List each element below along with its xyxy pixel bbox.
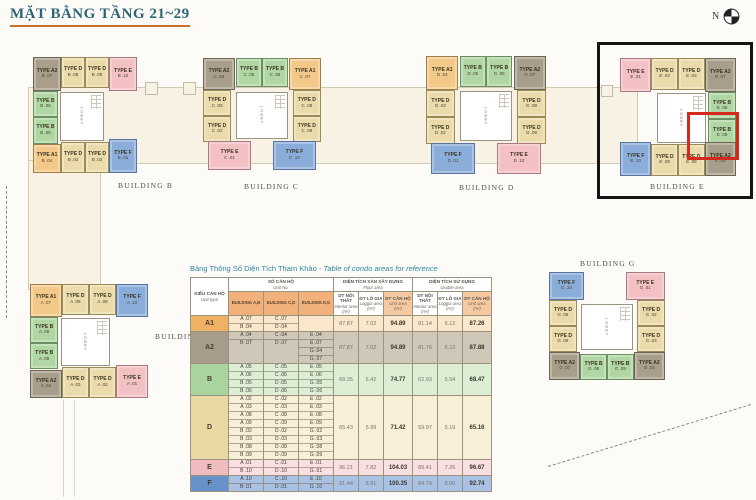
unit-block-a05: TYPE BA .05 [30, 343, 58, 369]
area-value-cell: 94.89 [384, 332, 413, 364]
unit-block-b01: TYPE FB .01 [109, 139, 137, 173]
unit-number: A .02 [97, 383, 107, 388]
unit-list-item: C .03 [264, 403, 298, 411]
lobby-block: LOBBY [60, 92, 104, 141]
unit-list-item: G .06 [299, 387, 333, 395]
unit-list-item: A .01 [229, 460, 263, 467]
area-value-cell: 5.19 [438, 396, 463, 460]
unit-number: D .04 [437, 73, 448, 78]
unit-block-b06: TYPE BB .06 [33, 91, 58, 118]
unit-number: B .05 [40, 131, 51, 136]
unit-list-item: C .04 [264, 332, 298, 339]
area-value-cell: 87.88 [463, 332, 492, 364]
lobby-label: LOBBY [83, 333, 88, 351]
unit-list-item: B .01 [229, 483, 263, 491]
unit-list-item: A .03 [229, 403, 263, 411]
unit-list-item: C .01 [264, 460, 298, 467]
unit-number: C .08 [301, 104, 312, 109]
unit-list-item: A .09 [229, 419, 263, 427]
unit-number: D .10 [514, 159, 525, 164]
unit-number: B .04 [42, 159, 53, 164]
row-label-a1: A1 [191, 316, 229, 332]
unit-list-item: E .08 [299, 411, 333, 419]
unit-number: B .03 [68, 158, 79, 163]
unit-list-item: D .05 [264, 379, 298, 387]
unit-block-g06: TYPE BG .06 [580, 354, 607, 380]
unit-block-d10: TYPE ED .10 [497, 143, 541, 174]
unit-block-g04: TYPE A2G .04 [634, 352, 665, 380]
unit-block-c06: TYPE BC .06 [262, 58, 288, 87]
unit-list-item: G .10 [299, 483, 333, 491]
unit-block-c03: TYPE DC .03 [203, 90, 231, 116]
unit-block-c02: TYPE DC .02 [203, 116, 231, 142]
unit-block-g03: TYPE DG .03 [637, 326, 665, 352]
unit-block-g08: TYPE DG .08 [549, 326, 577, 352]
unit-list-cell: C .04D .07 [264, 332, 299, 364]
lobby-block: LOBBY [581, 304, 632, 349]
unit-list-item: G .05 [299, 379, 333, 387]
unit-block-b03: TYPE DB .03 [61, 142, 85, 173]
unit-list-item: A .06 [229, 371, 263, 379]
unit-block-d09: TYPE DD .09 [517, 117, 546, 144]
area-value-cell: 68.47 [463, 364, 492, 396]
group-header-floor-area: DIỆN TÍCH SÀN XÂY DỰNGFloor area [334, 278, 413, 292]
unit-list-item: D .08 [264, 443, 298, 451]
unit-list-cell: E .02E .03E .08E .09G .02G .03G .08G .09 [299, 396, 334, 460]
unit-block-a03: TYPE DA .03 [62, 367, 89, 398]
area-value-cell: 7.82 [359, 460, 384, 476]
unit-block-g10: TYPE FG .10 [549, 272, 584, 300]
elevator-core [275, 95, 285, 109]
building-cluster-c: LOBBYTYPE A2C .04TYPE BC .05TYPE BC .06T… [203, 58, 321, 170]
unit-block-c09: TYPE DC .09 [293, 116, 321, 142]
building-label-b: BUILDING B [118, 181, 173, 190]
measure-header-1: DT LÔ GIALoggia area(m²) [359, 292, 384, 316]
unit-list-item: G .01 [299, 467, 333, 475]
area-value-cell: 6.42 [359, 364, 384, 396]
north-indicator: N [712, 8, 740, 25]
col-header-unit-no: SỐ CĂN HỘUnit No. [229, 278, 334, 292]
unit-list-item: D .10 [264, 467, 298, 475]
unit-list-cell: C .07D .04 [264, 316, 299, 332]
unit-number: D .01 [448, 159, 459, 164]
unit-number: D .03 [435, 104, 446, 109]
unit-list-item: G .08 [299, 443, 333, 451]
area-value-cell: 7.26 [438, 460, 463, 476]
unit-block-d04: TYPE A1D .04 [426, 56, 458, 90]
lobby-block: LOBBY [236, 92, 288, 139]
boundary-line-left [6, 186, 7, 318]
measure-header-0: DT NỘI THẤTInterior area(m²) [334, 292, 359, 316]
row-label-b: B [191, 364, 229, 396]
unit-list-item: D .03 [264, 435, 298, 443]
unit-number: D .08 [526, 104, 537, 109]
north-label: N [712, 11, 719, 22]
compass-icon [723, 8, 740, 25]
area-value-cell: 96.21 [334, 460, 359, 476]
unit-number: B .08 [68, 73, 79, 78]
building-subheader-1: BUILDING C,D [264, 292, 299, 316]
building-label-d: BUILDING D [459, 183, 515, 192]
area-value-cell: 6.12 [438, 332, 463, 364]
unit-list-cell: C .05C .06D .05D .06 [264, 364, 299, 396]
row-label-a2: A2 [191, 332, 229, 364]
lobby-label: LOBBY [79, 107, 84, 125]
unit-block-d07: TYPE A2D .07 [514, 56, 546, 90]
unit-number: G .01 [640, 286, 651, 291]
area-value-cell: 71.42 [384, 396, 413, 460]
unit-number: A .01 [127, 382, 137, 387]
building-label-g: BUILDING G [580, 259, 636, 268]
unit-number: G .02 [646, 313, 657, 318]
unit-block-d03: TYPE DD .03 [426, 90, 455, 117]
path-below-building-a [63, 400, 75, 497]
unit-list-cell: C .02C .03C .08C .09D .02D .03D .08D .09 [264, 396, 299, 460]
unit-block-c10: TYPE FC .10 [273, 141, 317, 170]
unit-block-c07: TYPE A1C .07 [289, 58, 321, 90]
unit-block-b05: TYPE BB .05 [33, 117, 58, 144]
unit-list-item: G .09 [299, 451, 333, 459]
unit-block-d01: TYPE FD .01 [431, 143, 475, 174]
unit-number: B .10 [118, 74, 129, 79]
unit-list-cell: E .04E .07G .04G .07 [299, 332, 334, 364]
unit-block-a04: TYPE A2A .04 [30, 370, 62, 399]
col-header-unit-type: KIỂU CĂN HỘUnit type [191, 278, 229, 316]
unit-number: A .07 [41, 301, 51, 306]
unit-list-item: E .02 [299, 396, 333, 403]
unit-number: C .06 [270, 73, 281, 78]
unit-list-item: B .04 [229, 323, 263, 331]
unit-block-g05: TYPE BG .05 [607, 354, 634, 380]
unit-number: D .09 [526, 131, 537, 136]
unit-list-item: E .01 [299, 460, 333, 467]
unit-block-g02: TYPE DG .02 [637, 300, 665, 326]
unit-block-a09: TYPE DA .09 [89, 284, 116, 315]
area-value-cell: 5.99 [359, 396, 384, 460]
unit-list-item: E .06 [299, 371, 333, 379]
unit-list-item: B .05 [229, 379, 263, 387]
unit-number: A .10 [127, 301, 137, 306]
unit-list-item: G .02 [299, 427, 333, 435]
unit-block-d06: TYPE BD .06 [486, 56, 512, 87]
unit-number: C .02 [212, 129, 223, 134]
building-cluster-g: LOBBYTYPE FG .10TYPE EG .01TYPE DG .09TY… [549, 272, 665, 380]
area-value-cell: 100.35 [384, 476, 413, 492]
unit-number: A .06 [39, 330, 49, 335]
unit-list-item: E .03 [299, 403, 333, 411]
unit-list-cell: A .04B .07 [229, 332, 264, 364]
unit-block-g07: TYPE A2G .07 [549, 352, 580, 380]
podium-strip-left [28, 160, 101, 290]
unit-number: C .05 [244, 73, 255, 78]
table-row-type-f: FA .10B .01C .10D .01E .10G .1091.448.91… [191, 476, 492, 492]
unit-list-item: D .07 [264, 339, 298, 347]
unit-block-d05: TYPE BD .05 [460, 56, 486, 87]
unit-number: C .07 [300, 75, 311, 80]
table-title: Bảng Thông Số Diện Tích Tham Khảo - Tabl… [190, 264, 495, 273]
row-label-d: D [191, 396, 229, 460]
unit-number: B .07 [42, 74, 53, 79]
unit-list-item: B .06 [229, 387, 263, 395]
unit-list-item: E .09 [299, 419, 333, 427]
area-value-cell: 84.74 [413, 476, 438, 492]
unit-block-c05: TYPE BC .05 [236, 58, 262, 87]
unit-list-cell: A .10B .01 [229, 476, 264, 492]
area-value-cell: 62.93 [413, 364, 438, 396]
building-label-c: BUILDING C [244, 182, 299, 191]
unit-list-item: G .03 [299, 435, 333, 443]
area-value-cell: 8.00 [438, 476, 463, 492]
unit-list-item: A .07 [229, 316, 263, 323]
unit-list-item: C .06 [264, 371, 298, 379]
unit-number: G .10 [561, 286, 572, 291]
unit-block-b02: TYPE DB .02 [85, 142, 109, 173]
unit-list-item: G .07 [299, 355, 333, 363]
areas-table: KIỂU CĂN HỘUnit typeSỐ CĂN HỘUnit No.DIỆ… [190, 277, 492, 492]
page-title: MẶT BẰNG TẦNG 21~29 [10, 6, 190, 27]
area-value-cell: 91.44 [334, 476, 359, 492]
unit-number: A .09 [97, 300, 107, 305]
lobby-block: LOBBY [61, 318, 111, 366]
lobby-label: LOBBY [604, 318, 609, 336]
unit-number: A .05 [39, 357, 49, 362]
unit-number: C .01 [224, 156, 235, 161]
unit-list-cell [299, 316, 334, 332]
unit-list-item: B .07 [229, 339, 263, 347]
unit-number: D .06 [494, 72, 505, 77]
unit-list-item: D .04 [264, 323, 298, 331]
area-value-cell: 94.89 [384, 316, 413, 332]
unit-list-item: B .10 [229, 467, 263, 475]
table-title-vi: Bảng Thông Số Diện Tích Tham Khảo - [190, 264, 321, 273]
unit-number: G .05 [615, 367, 626, 372]
lobby-label: LOBBY [259, 106, 264, 124]
elevator-core [620, 307, 630, 321]
area-value-cell: 81.14 [413, 316, 438, 332]
unit-list-cell: A .02A .03A .08A .09B .02B .03B .08B .09 [229, 396, 264, 460]
unit-list-item: D .02 [264, 427, 298, 435]
unit-number: A .04 [41, 384, 51, 389]
area-value-cell: 81.76 [413, 332, 438, 364]
measure-header-2: DT CĂN HỘUnit area(m²) [384, 292, 413, 316]
unit-number: B .02 [92, 158, 103, 163]
area-value-cell: 8.91 [359, 476, 384, 492]
building-cluster-a: LOBBYTYPE A1A .07TYPE DA .08TYPE DA .09T… [30, 284, 148, 398]
lobby-label: LOBBY [483, 107, 488, 125]
unit-block-a06: TYPE BA .06 [30, 317, 58, 343]
area-value-cell: 6.12 [438, 316, 463, 332]
unit-block-b10: TYPE EB .10 [109, 57, 137, 91]
unit-number: B .01 [118, 156, 129, 161]
group-header-usable-area: DIỆN TÍCH SỬ DỤNGUsable area [413, 278, 492, 292]
podium-core-square [145, 82, 158, 95]
highlight-box-unit-type-b [687, 112, 739, 160]
unit-number: G .06 [588, 367, 599, 372]
table-row-type-e: EA .01B .10C .01D .10E .01G .0196.217.82… [191, 460, 492, 476]
unit-list-item: A .10 [229, 476, 263, 483]
area-value-cell: 87.26 [463, 316, 492, 332]
unit-list-cell: A .05A .06B .05B .06 [229, 364, 264, 396]
unit-list-item: C .07 [264, 316, 298, 323]
row-label-e: E [191, 460, 229, 476]
area-value-cell: 7.02 [359, 332, 384, 364]
unit-block-c04: TYPE A2C .04 [203, 58, 235, 90]
building-subheader-0: BUILDING A,B [229, 292, 264, 316]
unit-list-item: C .10 [264, 476, 298, 483]
unit-number: B .09 [92, 73, 103, 78]
unit-block-g09: TYPE DG .09 [549, 300, 577, 326]
area-value-cell: 87.87 [334, 332, 359, 364]
unit-number: D .02 [435, 131, 446, 136]
unit-number: G .03 [646, 339, 657, 344]
unit-list-cell: A .07B .04 [229, 316, 264, 332]
table-row-type-a1: A1A .07B .04C .07D .0487.877.0294.8981.1… [191, 316, 492, 332]
unit-block-d08: TYPE DD .08 [517, 90, 546, 117]
unit-list-item: B .08 [229, 443, 263, 451]
unit-list-item: C .09 [264, 419, 298, 427]
unit-list-item: E .07 [299, 339, 333, 347]
unit-block-a10: TYPE FA .10 [116, 284, 148, 317]
unit-list-item: B .09 [229, 451, 263, 459]
unit-number: D .05 [467, 72, 478, 77]
unit-number: G .09 [557, 313, 568, 318]
area-value-cell: 92.74 [463, 476, 492, 492]
unit-number: A .08 [70, 300, 80, 305]
building-cluster-d: LOBBYTYPE A1D .04TYPE BD .05TYPE BD .06T… [426, 56, 546, 174]
areas-table-section: Bảng Thông Số Diện Tích Tham Khảo - Tabl… [190, 264, 495, 492]
unit-list-cell: C .01D .10 [264, 460, 299, 476]
page-title-wrap: MẶT BẰNG TẦNG 21~29 [10, 5, 190, 27]
unit-list-cell: E .10G .10 [299, 476, 334, 492]
podium-core-square [183, 82, 196, 95]
unit-list-item: E .10 [299, 476, 333, 483]
unit-number: G .04 [644, 366, 655, 371]
measure-header-4: DT LÔ GIALoggia area(m²) [438, 292, 463, 316]
unit-number: B .06 [40, 104, 51, 109]
unit-list-item: G .04 [299, 347, 333, 355]
unit-block-d02: TYPE DD .02 [426, 117, 455, 144]
unit-block-b09: TYPE DB .09 [85, 57, 109, 88]
area-value-cell: 7.02 [359, 316, 384, 332]
unit-block-a07: TYPE A1A .07 [30, 284, 62, 317]
table-row-type-b: BA .05A .06B .05B .06C .05C .06D .05D .0… [191, 364, 492, 396]
unit-number: C .10 [289, 156, 300, 161]
unit-list-cell: A .01B .10 [229, 460, 264, 476]
unit-number: C .03 [212, 104, 223, 109]
unit-list-cell: C .10D .01 [264, 476, 299, 492]
unit-block-a08: TYPE DA .08 [62, 284, 89, 315]
area-value-cell: 65.16 [463, 396, 492, 460]
unit-list-item: C .08 [264, 411, 298, 419]
unit-list-item: D .06 [264, 387, 298, 395]
row-label-f: F [191, 476, 229, 492]
unit-number: D .07 [524, 73, 535, 78]
unit-block-a02: TYPE DA .02 [89, 367, 116, 398]
area-value-cell: 65.43 [334, 396, 359, 460]
unit-list-item: A .08 [229, 411, 263, 419]
building-subheader-2: BUILDING E,G [299, 292, 334, 316]
unit-block-a01: TYPE EA .01 [116, 365, 148, 398]
area-value-cell: 96.67 [463, 460, 492, 476]
unit-list-item: E .05 [299, 364, 333, 371]
unit-list-item: D .09 [264, 451, 298, 459]
area-value-cell: 74.77 [384, 364, 413, 396]
unit-list-item: A .04 [229, 332, 263, 339]
area-value-cell: 89.41 [413, 460, 438, 476]
unit-number: C .09 [301, 129, 312, 134]
unit-block-b08: TYPE DB .08 [61, 57, 85, 88]
area-value-cell: 87.87 [334, 316, 359, 332]
measure-header-3: DT NỘI THẤTInterior area(m²) [413, 292, 438, 316]
unit-list-item: A .05 [229, 364, 263, 371]
unit-block-c01: TYPE EC .01 [208, 141, 252, 170]
unit-block-g01: TYPE EG .01 [626, 272, 665, 300]
building-cluster-b: LOBBYTYPE A2B .07TYPE DB .08TYPE DB .09T… [33, 57, 137, 173]
unit-number: G .08 [557, 339, 568, 344]
unit-block-b07: TYPE A2B .07 [33, 57, 61, 91]
area-value-cell: 59.97 [413, 396, 438, 460]
table-row-type-d: DA .02A .03A .08A .09B .02B .03B .08B .0… [191, 396, 492, 460]
area-value-cell: 68.35 [334, 364, 359, 396]
elevator-core [499, 94, 509, 108]
boundary-line-diagonal [548, 404, 751, 467]
elevator-core [97, 321, 107, 335]
unit-block-c08: TYPE DC .08 [293, 90, 321, 116]
unit-list-item: C .02 [264, 396, 298, 403]
unit-list-item: A .02 [229, 396, 263, 403]
lobby-block: LOBBY [460, 91, 513, 141]
floor-plan-page: MẶT BẰNG TẦNG 21~29 N LOBBYTYPE A2B .07T… [0, 0, 756, 500]
unit-block-b04: TYPE A1B .04 [33, 144, 61, 173]
elevator-core [91, 95, 101, 109]
unit-number: C .04 [214, 75, 225, 80]
unit-list-item: C .05 [264, 364, 298, 371]
unit-list-cell: E .01G .01 [299, 460, 334, 476]
unit-list-cell: E .05E .06G .05G .06 [299, 364, 334, 396]
unit-number: G .07 [559, 366, 570, 371]
unit-list-item: D .01 [264, 483, 298, 491]
unit-list-item: B .02 [229, 427, 263, 435]
unit-number: A .03 [70, 383, 80, 388]
unit-list-item: E .04 [299, 332, 333, 339]
unit-list-item: B .03 [229, 435, 263, 443]
area-value-cell: 104.03 [384, 460, 413, 476]
area-value-cell: 5.54 [438, 364, 463, 396]
table-row-type-a2: A2A .04B .07C .04D .07E .04E .07G .04G .… [191, 332, 492, 364]
table-title-en: Table of condo areas for reference [323, 264, 437, 273]
measure-header-5: DT CĂN HỘUnit area(m²) [463, 292, 492, 316]
